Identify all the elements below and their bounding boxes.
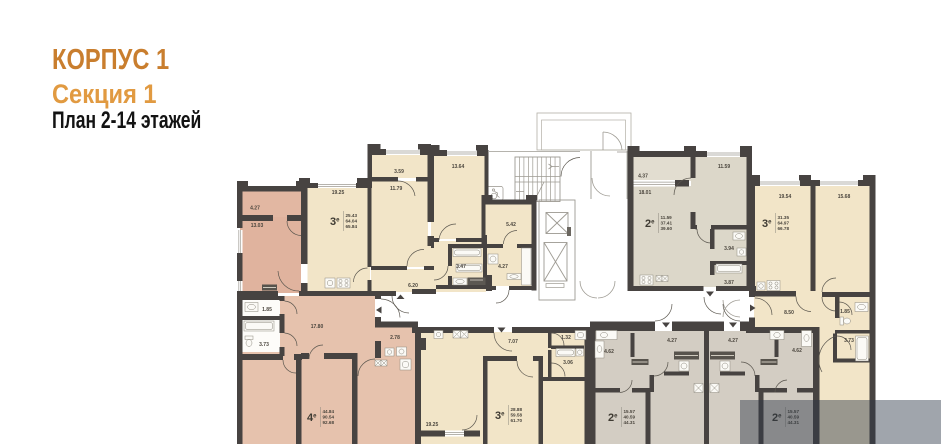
- svg-text:11.59: 11.59: [661, 215, 673, 220]
- svg-text:4.62: 4.62: [792, 348, 802, 354]
- svg-text:64.97: 64.97: [778, 221, 790, 226]
- svg-text:19.54: 19.54: [779, 194, 792, 200]
- svg-text:3.73: 3.73: [844, 338, 854, 344]
- svg-text:28.88: 28.88: [511, 407, 523, 412]
- svg-text:59.58: 59.58: [511, 413, 523, 418]
- svg-text:3.87: 3.87: [724, 280, 734, 286]
- svg-text:44.84: 44.84: [323, 409, 335, 414]
- svg-text:4.27: 4.27: [498, 264, 508, 270]
- svg-text:8.50: 8.50: [784, 310, 794, 316]
- svg-text:17.80: 17.80: [311, 324, 324, 330]
- svg-text:1.85: 1.85: [262, 307, 272, 313]
- svg-text:19.25: 19.25: [426, 422, 439, 428]
- svg-text:4.27: 4.27: [667, 338, 677, 344]
- svg-text:66.78: 66.78: [778, 226, 790, 231]
- svg-text:13.64: 13.64: [452, 164, 465, 170]
- svg-text:13.03: 13.03: [251, 223, 264, 229]
- svg-text:3.06: 3.06: [563, 360, 573, 366]
- svg-text:4.37: 4.37: [638, 174, 648, 180]
- svg-text:1.85: 1.85: [840, 309, 850, 315]
- svg-text:39.60: 39.60: [661, 226, 673, 231]
- svg-text:1.32: 1.32: [561, 335, 571, 341]
- svg-text:90.54: 90.54: [323, 415, 335, 420]
- svg-text:3.47: 3.47: [456, 264, 466, 270]
- svg-text:7.07: 7.07: [508, 339, 518, 345]
- svg-text:61.70: 61.70: [511, 418, 523, 423]
- svg-text:19.25: 19.25: [332, 190, 345, 196]
- svg-text:40.59: 40.59: [624, 415, 636, 420]
- svg-text:6.20: 6.20: [408, 283, 418, 289]
- svg-text:11.59: 11.59: [718, 164, 730, 170]
- svg-text:18.01: 18.01: [639, 190, 652, 196]
- svg-text:5.42: 5.42: [506, 222, 516, 228]
- svg-text:44.31: 44.31: [624, 420, 636, 425]
- svg-text:3.94: 3.94: [724, 246, 734, 252]
- svg-text:4.27: 4.27: [728, 338, 738, 344]
- svg-text:64.04: 64.04: [346, 219, 358, 224]
- svg-text:25.43: 25.43: [346, 213, 358, 218]
- svg-text:65.84: 65.84: [346, 224, 358, 229]
- svg-text:92.68: 92.68: [323, 420, 335, 425]
- svg-text:31.35: 31.35: [778, 215, 790, 220]
- svg-text:3.59: 3.59: [394, 169, 404, 175]
- svg-text:4.27: 4.27: [250, 206, 260, 212]
- svg-text:37.41: 37.41: [661, 221, 673, 226]
- svg-text:3.73: 3.73: [259, 342, 269, 348]
- svg-text:2.78: 2.78: [390, 335, 400, 341]
- svg-text:11.79: 11.79: [390, 186, 402, 192]
- svg-text:15.57: 15.57: [624, 409, 636, 414]
- svg-text:15.68: 15.68: [838, 194, 851, 200]
- svg-text:4.62: 4.62: [604, 349, 614, 355]
